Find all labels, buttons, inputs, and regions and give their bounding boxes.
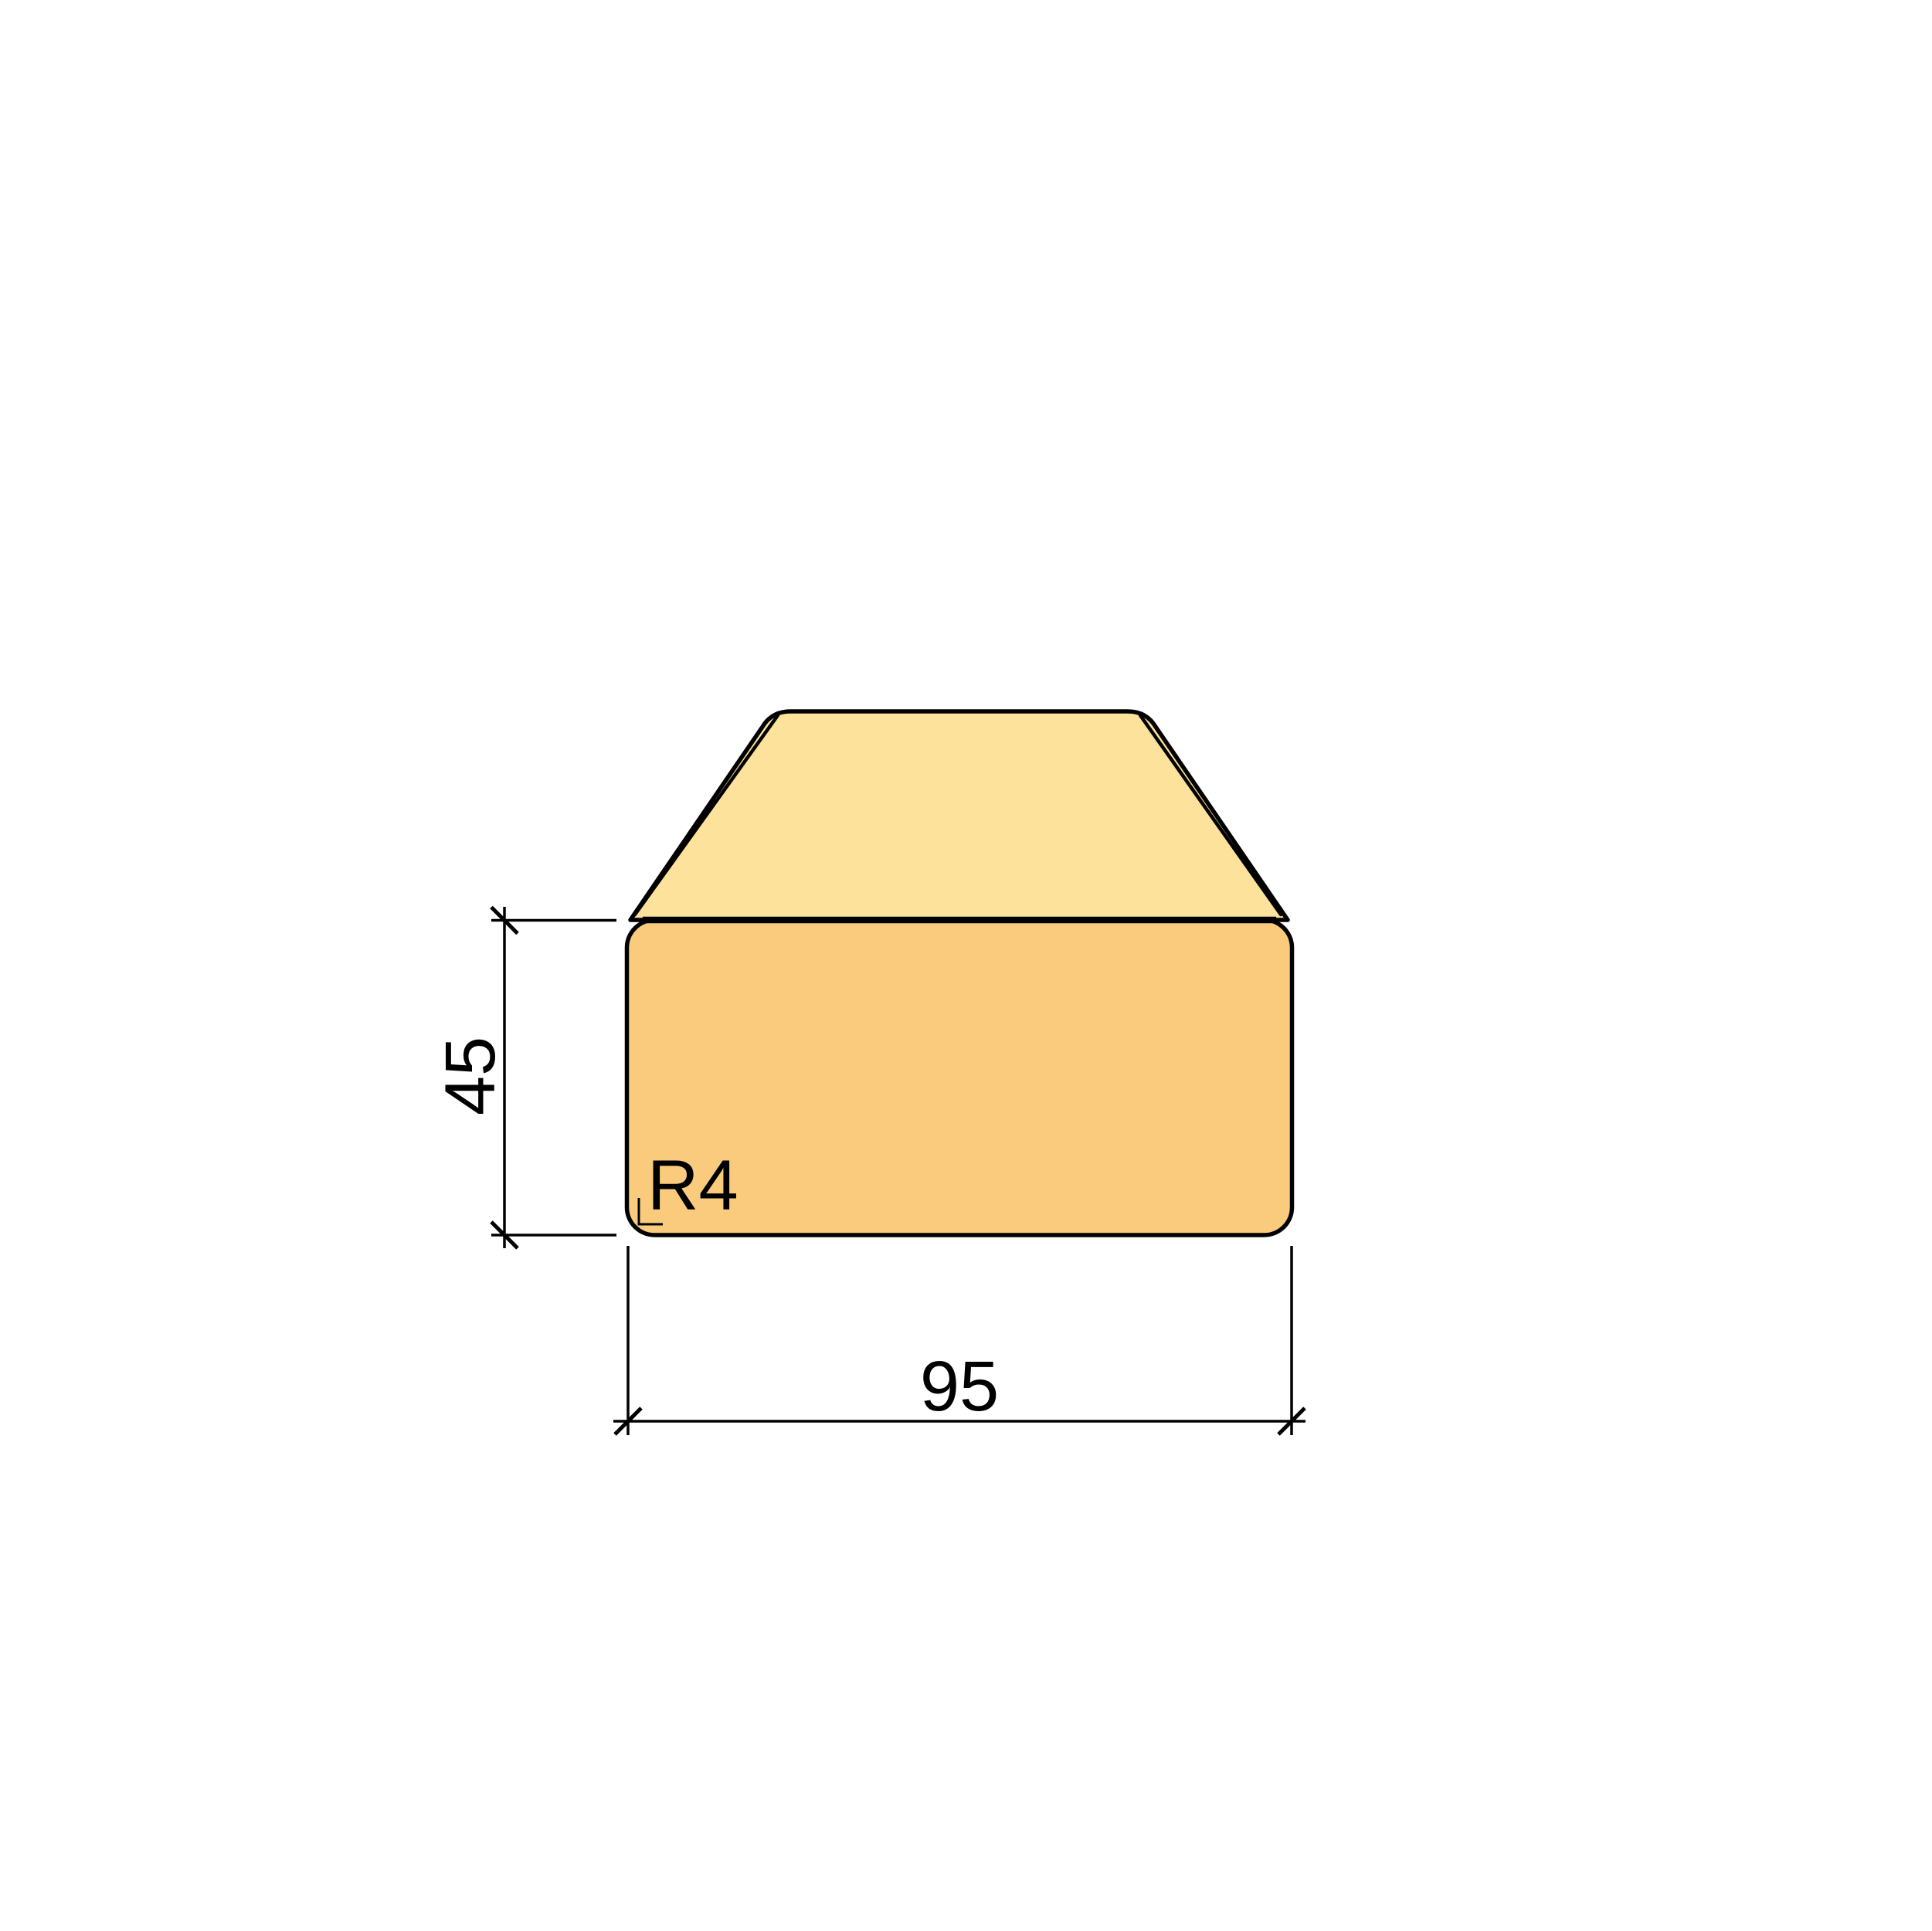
width-dimension-label: 95 (920, 1347, 999, 1426)
radius-annotation: R4 (639, 1146, 739, 1225)
height-dimension: 45 (431, 907, 616, 1248)
radius-label: R4 (647, 1146, 739, 1225)
technical-drawing: 45 95 R4 (0, 0, 1932, 1931)
width-dimension: 95 (613, 1246, 1306, 1435)
height-dimension-label: 45 (431, 1037, 510, 1115)
top-face (630, 711, 1288, 920)
